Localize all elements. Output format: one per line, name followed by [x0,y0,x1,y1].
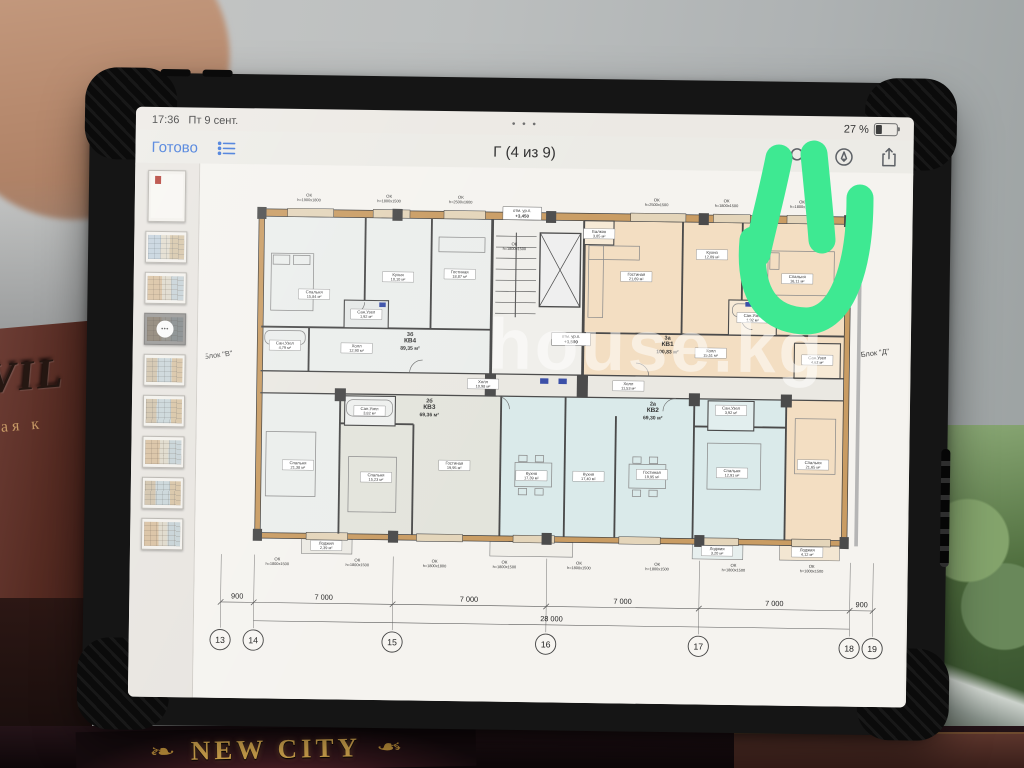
search-icon[interactable] [789,147,807,165]
dimension-line [392,557,393,631]
room-name: Гостиная [643,470,661,475]
done-button[interactable]: Готово [151,138,198,156]
room-name: Сан.Узел [276,340,295,345]
case-grip-notches [940,449,951,567]
room-area: 2,39 м² [320,545,333,550]
room-name: Кухня [706,250,717,255]
cover-logo [155,176,161,184]
thumbnail-preview [145,481,181,506]
page-thumbnail[interactable] [142,477,184,510]
window-size-label: h=1800x1800 [423,564,447,568]
volume-button [161,69,191,76]
room-name: Спальня [289,460,306,465]
dimension-segment: 900 [231,591,243,600]
floor-plan: ОКh=1900x1800ОКh=1800x1500ОКh=2500x1600О… [201,190,907,704]
dimension-segment: 900 [855,600,867,609]
room-name: Лоджия [800,547,815,552]
room-area: 17,39 м² [524,475,539,480]
window-label: ОК [799,199,805,204]
room-name: Балкон [592,229,607,234]
room-area: 18,87 м² [452,274,467,279]
page-thumbnail[interactable]: ••• [144,313,186,346]
thumbnail-list-icon[interactable] [218,140,237,155]
apartment-area: 69,30 м² [643,415,663,421]
newcity-box: ❧ NEW CITY ❧ [76,724,477,768]
room-area: 3,92 м² [725,410,738,415]
newcity-title: NEW CITY [191,732,362,767]
pdf-main-view[interactable]: ОКh=1900x1800ОКh=1800x1500ОКh=2500x1600О… [193,164,913,708]
window-label: ОК [512,241,518,246]
grid-axis-number: 19 [867,644,877,654]
block-right-label: Блок "Д" [860,347,890,360]
dimension-total: 28 000 [540,614,563,623]
page-thumbnail[interactable] [143,395,185,428]
elevation-value: +3,450 [515,213,529,218]
window-size-label: h=1800x1500 [800,569,824,573]
window-label: ОК [432,559,438,564]
room-area: 3,20 м² [711,550,724,555]
room-area: 12,90 м² [349,348,364,353]
room-name: Сан.Узел [361,406,380,411]
room-name: Гостиная [627,272,645,277]
room-area: 15,23 м² [369,477,384,482]
room-name: Холл [352,343,363,348]
grid-axis-number: 16 [541,639,551,649]
grid-axis-number: 18 [844,644,854,654]
thumbnail-preview [144,522,180,547]
page-thumbnail[interactable] [148,170,187,223]
window-size-label: h=2500x1500 [645,203,669,207]
window-label: ОК [654,562,660,567]
window-size-label: h=2500x1600 [449,200,473,204]
window-label: ОК [576,561,582,566]
room-area: 16,11 м² [790,278,805,283]
window-size-label: h=1800x1500 [567,566,591,570]
dimension-segment: 7 000 [765,599,784,608]
markup-pencil-icon[interactable] [834,147,853,166]
page-thumbnail[interactable] [143,354,185,387]
grid-axis-number: 14 [248,635,258,645]
room-area: 4,12 м² [801,552,814,557]
window-size-label: h=1800x1500 [715,204,739,208]
foliage-photo [940,425,1024,755]
window-label: ОК [502,560,508,565]
room-area: 19,95 м² [447,465,462,470]
volume-button [203,70,233,77]
window-size-label: h=1800x1500 [645,567,669,571]
window-size-label: h=1800x1500 [493,565,517,569]
room-name: Лоджия [319,541,334,546]
apartment-number: КВ2 [647,407,660,414]
room-name: Сан.Узел [722,406,741,411]
room-name: Сан.Узел [357,309,376,314]
room-name: Кухня [526,471,537,476]
page-thumbnail[interactable] [142,436,184,469]
thumbnail-preview [146,358,182,383]
window-size-label: h=1800x1500 [345,563,369,567]
page-thumbnail[interactable] [141,518,183,551]
window-label: ОК [306,193,312,198]
room-area: 17,40 м² [581,476,596,481]
window-size-label: h=1800x1500 [722,568,746,572]
selected-page-menu[interactable]: ••• [156,320,173,337]
tablet-device: 17:36 Пт 9 сент. • • • 27 % Готово [81,72,952,736]
window-size-label: h=1800x1500 [265,562,289,566]
elevation-label: отм. ур.п. [513,208,532,213]
window-label: ОК [274,556,280,561]
apartment-number: КВ3 [423,404,436,411]
watermark: house.kg [488,304,826,389]
grid-axis-number: 17 [693,641,703,651]
room-area: 3,82 м² [363,410,376,415]
room-name: Спальня [805,460,822,465]
battery-icon [874,123,898,136]
tablet-screen: 17:36 Пт 9 сент. • • • 27 % Готово [128,107,914,708]
apartment-number: КВ4 [404,337,417,344]
window-label: ОК [654,197,660,202]
page-thumbnail[interactable] [144,272,186,305]
page-thumbnail[interactable] [145,231,187,264]
room-name: Кухня [583,472,594,477]
share-icon[interactable] [880,147,897,167]
room-area: 10,10 м² [391,277,406,282]
window-label: ОК [809,564,815,569]
gold-flourish-right: ❧ [376,734,403,760]
window-label: ОК [458,195,464,200]
room-area: 3,85 м² [593,233,606,238]
dimension-line [872,563,873,637]
window-size-label: h=1900x1800 [297,198,321,202]
window-label: ОК [731,563,737,568]
room-area: 1,92 м² [360,314,373,319]
thumbnail-preview [146,399,182,424]
photo-scene: VIL ная к ❧ NEW CITY ❧ 17:36 Пт 9 сент. … [0,0,1024,768]
room-name: Гостиная [451,269,469,274]
dimension-segment: 7 000 [460,595,479,604]
dimension-segment: 7 000 [613,597,632,606]
room-name: Кухня [392,272,403,277]
thumbnail-preview [145,440,181,465]
room-area: 12,91 м² [725,473,740,478]
room-name: Спальня [789,274,806,279]
window-label: ОК [386,194,392,199]
window-size-label: h=1800x1500 [377,199,401,203]
window-label: ОК [724,198,730,203]
block-left-label: Блок "В" [203,348,233,361]
dimension-segment: 7 000 [314,593,333,602]
grid-axis-number: 15 [387,637,397,647]
window-size-label: h=1800x1500 [790,205,814,209]
grid-axis-number: 13 [215,635,225,645]
room-name: Спальня [306,289,323,294]
room-area: 15,84 м² [307,294,322,299]
pdf-page[interactable]: ОКh=1900x1800ОКh=1800x1500ОКh=2500x1600О… [193,164,911,708]
apartment-area: 89,35 м² [400,346,420,352]
dimension-line [220,554,221,628]
thumbnail-sidebar[interactable]: ••• [128,163,200,698]
apartment-area: 69,36 м² [419,412,439,418]
room-name: Лоджия [710,546,725,551]
room-area: 21,65 м² [806,464,821,469]
thumbnail-preview [148,235,184,260]
window-label: ОК [354,557,360,562]
room-area: 21,69 м² [629,276,644,281]
dimension-line [253,555,254,629]
room-area: 4,79 м² [279,345,292,350]
dimension-line [849,563,850,637]
room-name: Спальня [367,472,384,477]
room-name: Гостиная [445,461,463,466]
room-name: Спальня [724,468,741,473]
thumbnail-preview [147,276,183,301]
room-area: 12,09 м² [705,254,720,259]
room-area: 19,95 м² [645,474,660,479]
room-area: 21,38 м² [291,465,306,470]
gold-flourish-left: ❧ [149,739,176,765]
window-size-label: h=1800x1500 [503,247,527,251]
dimension-line [698,561,699,635]
